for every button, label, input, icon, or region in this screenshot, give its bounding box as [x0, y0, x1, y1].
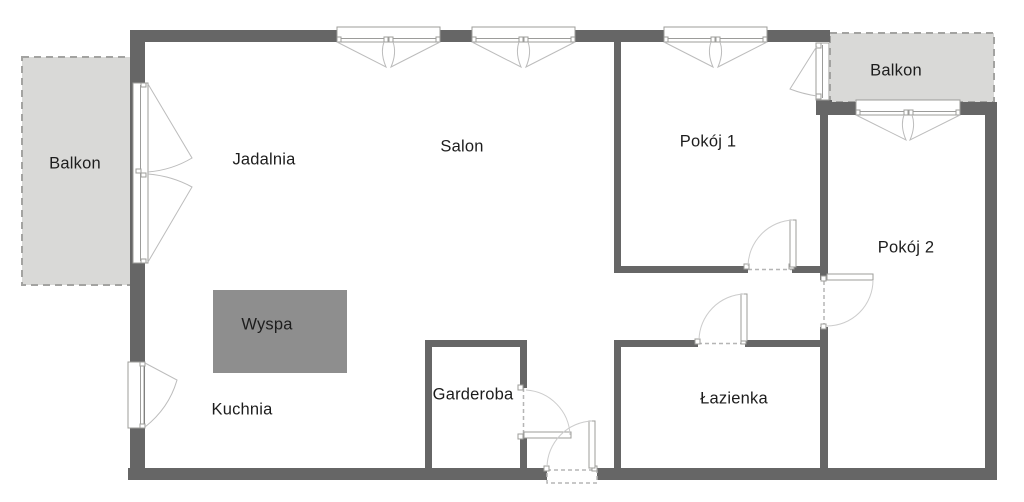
window-top-1: [337, 27, 440, 67]
door-pokoj2: [821, 274, 873, 329]
wall-right: [985, 102, 997, 480]
wall-garderoba-right-b: [520, 437, 527, 468]
wall-pokoj1-bottom-a: [614, 266, 748, 273]
wall-pokoj2-left-b: [820, 327, 828, 468]
wall-garderoba-right-a: [520, 340, 527, 388]
wall-lazienka-top-a: [614, 340, 698, 347]
wall-garderoba-left: [425, 340, 432, 468]
room-label-pokoj2: Pokój 2: [878, 239, 934, 258]
window-pokoj1: [664, 27, 767, 67]
room-label-salon: Salon: [440, 138, 483, 157]
room-label-lazienka: Łazienka: [700, 390, 768, 409]
wall-garderoba-top: [425, 340, 527, 347]
room-label-balkon-right: Balkon: [870, 62, 922, 81]
wall-lazienka-left: [614, 340, 621, 468]
door-garderoba: [518, 385, 571, 439]
balcony-door-left: [133, 83, 192, 263]
room-label-kuchnia: Kuchnia: [211, 401, 272, 420]
room-label-garderoba: Garderoba: [433, 386, 514, 405]
room-label-balkon-left: Balkon: [49, 155, 101, 174]
island-label: Wyspa: [241, 316, 292, 335]
window-kuchnia: [128, 362, 177, 428]
room-label-jadalnia: Jadalnia: [232, 151, 295, 170]
door-pokoj1: [744, 220, 796, 270]
doors: [518, 220, 873, 483]
window-top-2: [472, 27, 575, 67]
room-label-pokoj1: Pokój 1: [680, 133, 736, 152]
door-entrance: [544, 421, 597, 483]
wall-bottom-right: [597, 468, 997, 480]
wall-bottom-left: [128, 468, 547, 480]
floor-plan: Balkon Jadalnia Salon Pokój 1 Balkon Pok…: [0, 0, 1024, 502]
wall-pokoj2-left-a: [820, 100, 828, 280]
wall-salon-pokoj1: [614, 42, 621, 270]
balcony-door-right: [790, 43, 829, 100]
door-lazienka: [695, 294, 747, 344]
wall-pokoj2-window-left: [830, 102, 857, 115]
window-pokoj2: [856, 100, 960, 140]
wall-lazienka-top-b: [745, 340, 820, 347]
